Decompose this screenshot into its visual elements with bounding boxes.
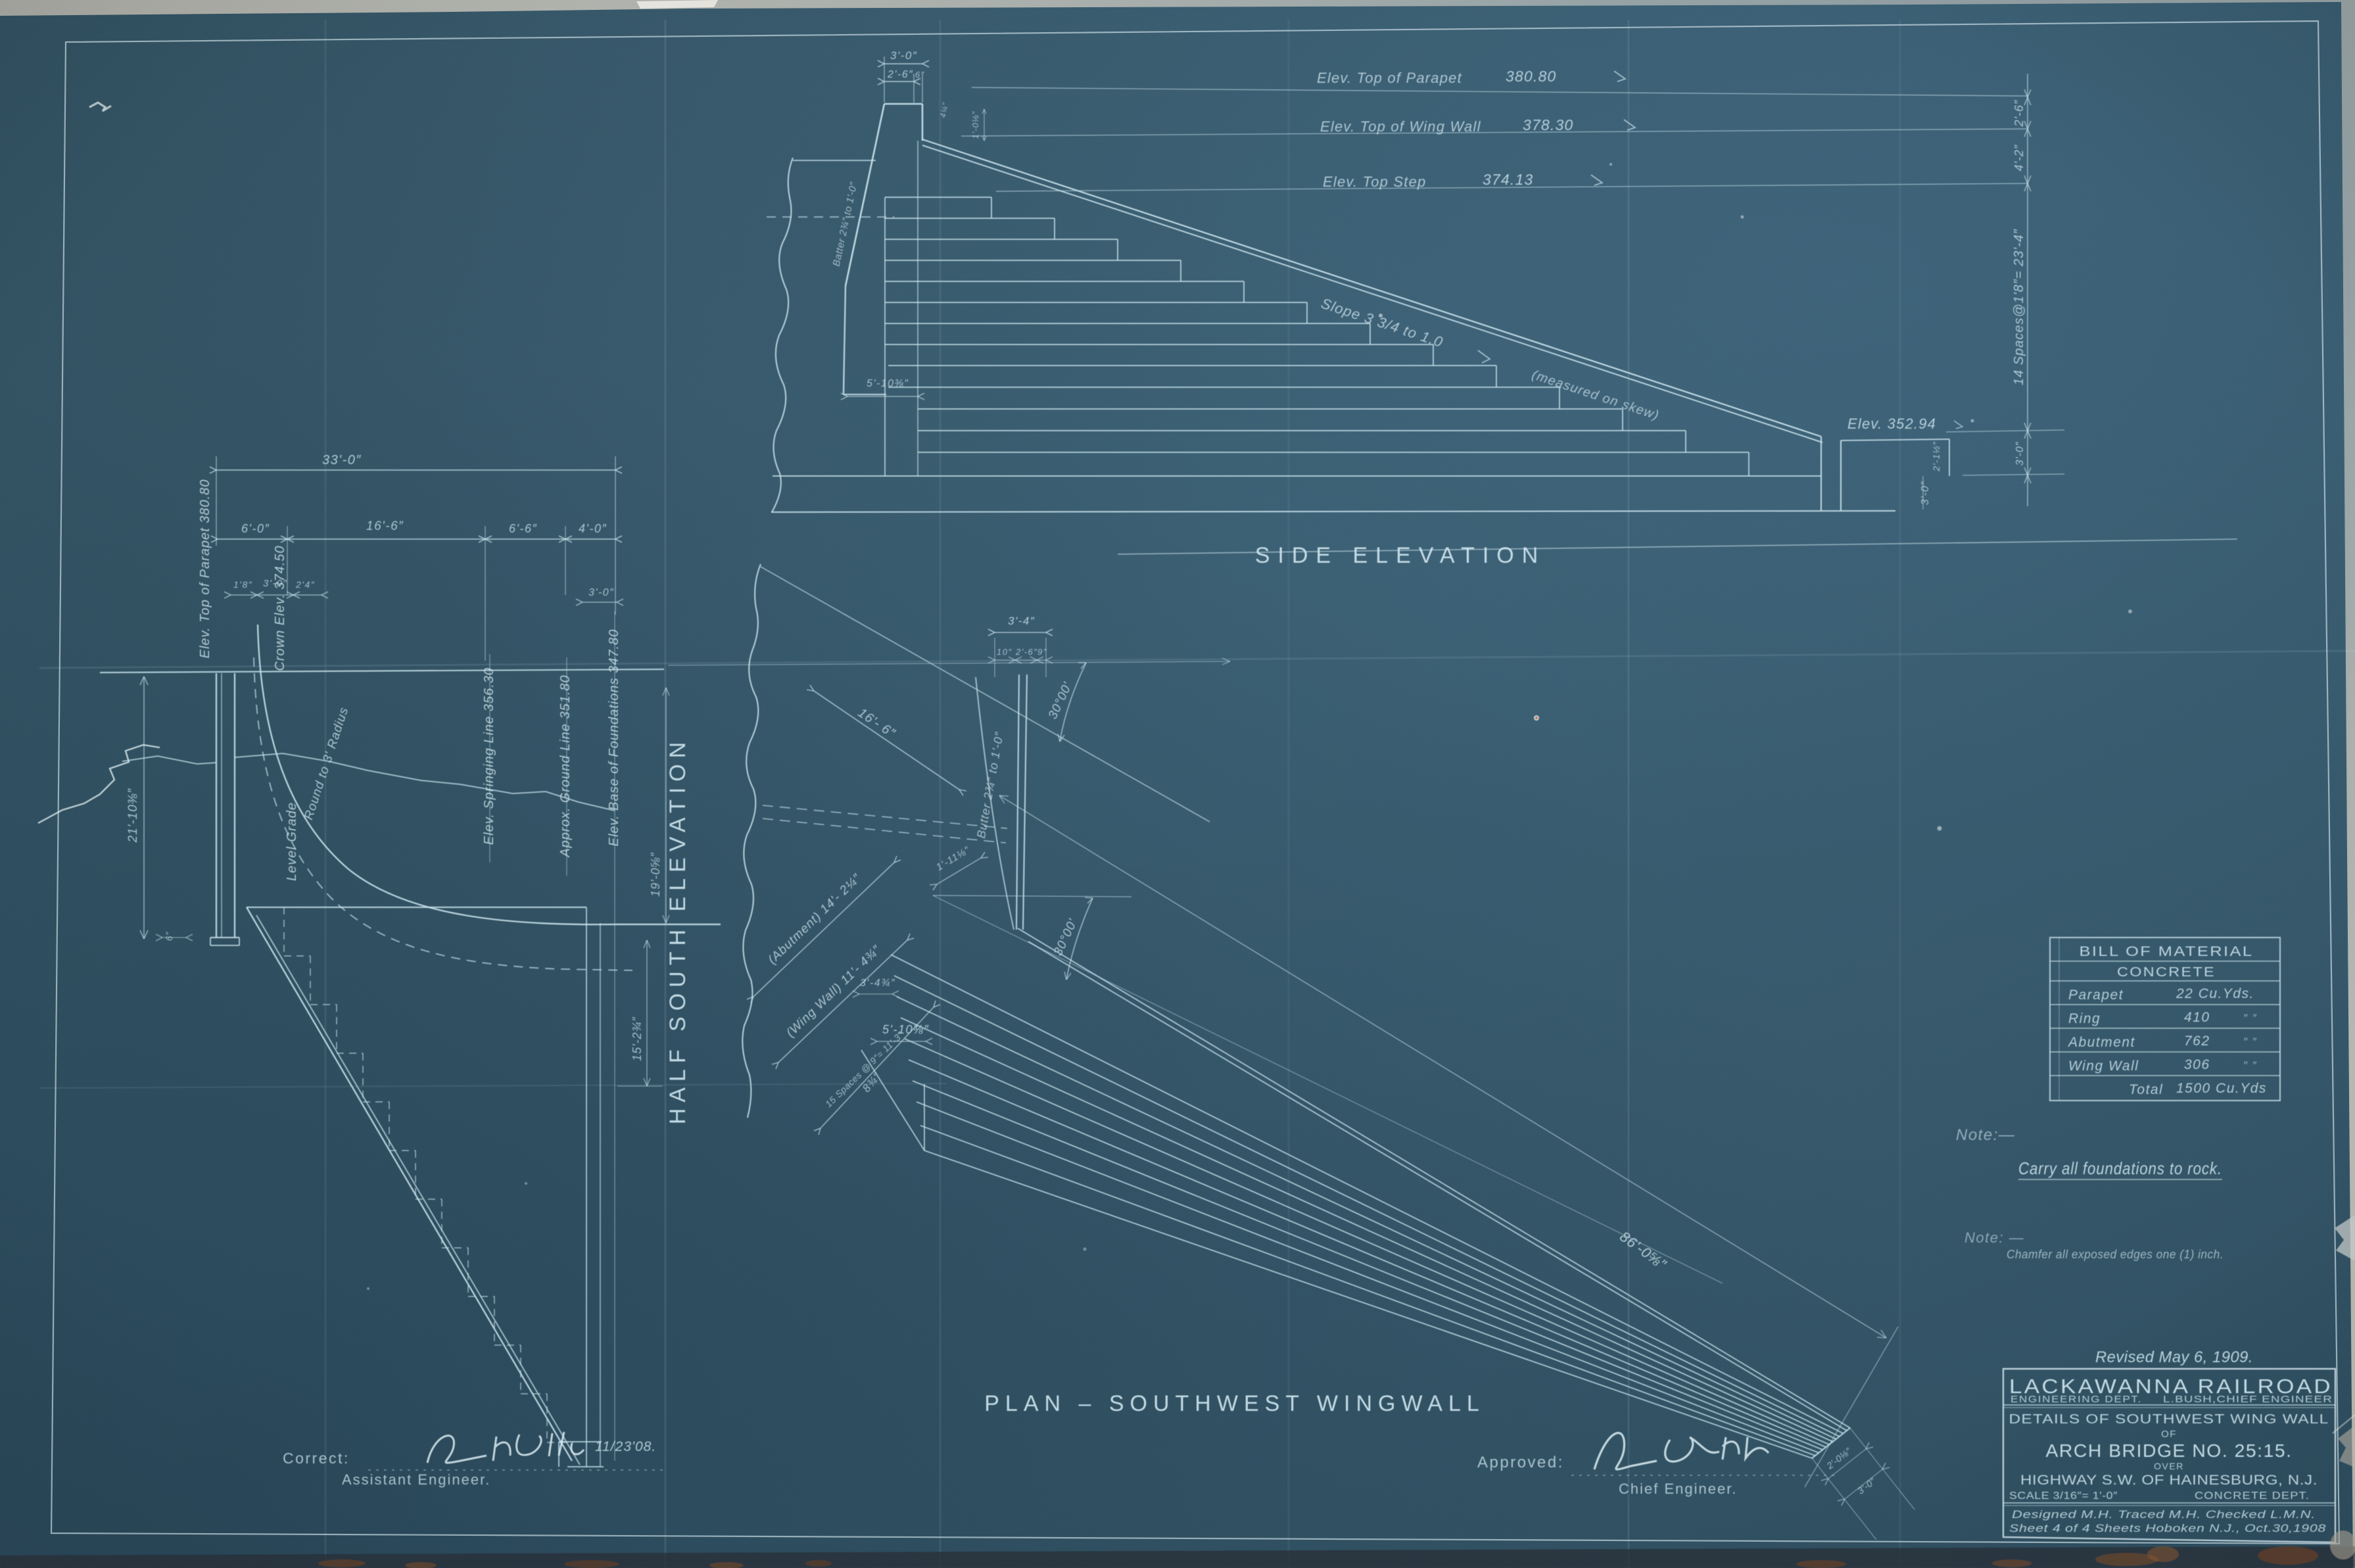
svg-text:Designed M.H. Traced M.H.: Designed M.H. Traced M.H. Checked L.M.N. (2012, 1508, 2316, 1521)
svg-text:L.BUSH,CHIEF ENGINEER: L.BUSH,CHIEF ENGINEER (2163, 1394, 2333, 1405)
svg-text:15'-2¾″: 15'-2¾″ (630, 1016, 644, 1061)
svg-text:Ring: Ring (2068, 1011, 2101, 1026)
svg-text:19'-0⅝″: 19'-0⅝″ (649, 852, 662, 897)
svg-text:″ ″: ″ ″ (2243, 1035, 2257, 1048)
svg-text:SIDE ELEVATION: SIDE ELEVATION (1255, 543, 1546, 568)
svg-text:Wing Wall: Wing Wall (2068, 1058, 2139, 1074)
svg-text:CONCRETE DEPT.: CONCRETE DEPT. (2195, 1490, 2310, 1502)
svg-text:3'-0″: 3'-0″ (1920, 481, 1931, 505)
svg-text:Carry all foundations to rock.: Carry all foundations to rock. (2018, 1158, 2222, 1178)
svg-text:Elev. Top Step: Elev. Top Step (1323, 174, 1426, 190)
svg-text:Parapet: Parapet (2068, 987, 2124, 1003)
svg-text:Revised May 6, 1909.: Revised May 6, 1909. (2095, 1348, 2253, 1366)
svg-text:10″: 10″ (997, 647, 1012, 657)
svg-text:2'-6″: 2'-6″ (1015, 647, 1037, 657)
svg-text:380.80: 380.80 (1506, 68, 1557, 85)
svg-text:Elev. Top of Wing Wall: Elev. Top of Wing Wall (1320, 118, 1481, 135)
svg-text:11/23'08.: 11/23'08. (595, 1439, 656, 1454)
svg-text:″ ″: ″ ″ (2243, 1059, 2257, 1072)
svg-text:CONCRETE: CONCRETE (2117, 965, 2216, 980)
svg-text:Correct:: Correct: (283, 1450, 350, 1467)
svg-text:378.30: 378.30 (1523, 116, 1574, 133)
svg-text:Elev. Springing Line 356.30: Elev. Springing Line 356.30 (482, 667, 496, 845)
svg-text:3'-4¾″: 3'-4¾″ (860, 978, 895, 989)
svg-text:21'-10⅜″: 21'-10⅜″ (126, 788, 140, 843)
svg-text:DETAILS OF SOUTHWEST WING WALL: DETAILS OF SOUTHWEST WING WALL (2009, 1412, 2329, 1427)
svg-text:6'-6″: 6'-6″ (509, 522, 537, 535)
svg-text:33'-0″: 33'-0″ (322, 453, 362, 467)
svg-text:6″: 6″ (164, 932, 174, 941)
svg-text:Chief Engineer.: Chief Engineer. (1619, 1481, 1737, 1497)
svg-text:3'-4″: 3'-4″ (1008, 615, 1035, 627)
svg-text:762: 762 (2184, 1033, 2210, 1049)
svg-text:Note:—: Note:— (1956, 1126, 2015, 1144)
svg-text:Elev. 352.94: Elev. 352.94 (1847, 416, 1936, 432)
svg-text:16'-6″: 16'-6″ (366, 519, 404, 533)
svg-text:3'-0″: 3'-0″ (890, 49, 917, 62)
svg-text:ENGINEERING DEPT.: ENGINEERING DEPT. (2010, 1394, 2142, 1405)
svg-text:22 Cu.Yds.: 22 Cu.Yds. (2176, 986, 2254, 1001)
svg-text:HALF SOUTH ELEVATION: HALF SOUTH ELEVATION (665, 736, 690, 1125)
svg-text:Assistant Engineer.: Assistant Engineer. (342, 1471, 490, 1488)
svg-text:4'-2″: 4'-2″ (2012, 145, 2026, 172)
svg-text:Elev. Top of Parapet 380.80: Elev. Top of Parapet 380.80 (198, 479, 212, 659)
svg-text:BILL OF MATERIAL: BILL OF MATERIAL (2080, 944, 2254, 959)
svg-text:6'-0″: 6'-0″ (241, 522, 270, 535)
svg-text:5'-10⅜″: 5'-10⅜″ (882, 1023, 929, 1036)
svg-text:1500 Cu.Yds: 1500 Cu.Yds (2176, 1081, 2267, 1096)
svg-text:ARCH BRIDGE NO. 25:15.: ARCH BRIDGE NO. 25:15. (2046, 1440, 2293, 1461)
svg-text:Sheet 4 of 4 Sheets Hobok: Sheet 4 of 4 Sheets Hoboken N.J., Oct.30… (2009, 1522, 2326, 1534)
svg-text:″ ″: ″ ″ (2243, 1012, 2257, 1024)
svg-text:9″: 9″ (1037, 647, 1047, 657)
svg-text:3'-0″: 3'-0″ (2014, 441, 2026, 465)
svg-text:Chamfer all exposed edges one: Chamfer all exposed edges one (1) inch. (2007, 1248, 2224, 1261)
svg-text:306: 306 (2184, 1057, 2210, 1072)
svg-text:OF: OF (2161, 1429, 2177, 1440)
svg-text:374.13: 374.13 (1483, 171, 1534, 188)
svg-text:14 Spaces@1'8″= 23'-4″: 14 Spaces@1'8″= 23'-4″ (2012, 229, 2026, 385)
svg-text:SCALE 3/16″= 1'-0″: SCALE 3/16″= 1'-0″ (2009, 1490, 2118, 1502)
svg-text:Approved:: Approved: (1477, 1454, 1564, 1471)
svg-text:PLAN – SOUTHWEST WINGWALL: PLAN – SOUTHWEST WINGWALL (984, 1391, 1485, 1416)
svg-text:Elev. Top of Parapet: Elev. Top of Parapet (1317, 70, 1462, 86)
svg-text:2'-6″: 2'-6″ (887, 69, 913, 80)
svg-text:HIGHWAY S.W. OF HAINESBURG, N.: HIGHWAY S.W. OF HAINESBURG, N.J. (2020, 1473, 2318, 1488)
svg-text:Total: Total (2129, 1082, 2163, 1097)
svg-text:OVER: OVER (2154, 1461, 2184, 1471)
svg-text:Abutment: Abutment (2067, 1035, 2135, 1050)
svg-text:4'-0″: 4'-0″ (579, 522, 607, 535)
svg-text:Note: —: Note: — (1964, 1229, 2024, 1246)
svg-text:2'4″: 2'4″ (295, 579, 315, 590)
svg-text:Crown Elev. 374.50: Crown Elev. 374.50 (273, 545, 287, 671)
svg-text:3'-0″: 3'-0″ (588, 587, 614, 598)
svg-text:2'-6″: 2'-6″ (2012, 100, 2026, 128)
svg-text:Elev. Base of Foundations 34: Elev. Base of Foundations 347.80 (607, 629, 621, 847)
svg-text:Approx. Ground Line 351.80: Approx. Ground Line 351.80 (558, 675, 573, 857)
svg-text:1'-0⅛″: 1'-0⅛″ (970, 111, 980, 139)
svg-text:2'-1½″: 2'-1½″ (1931, 441, 1941, 472)
svg-text:1'8″: 1'8″ (233, 579, 252, 590)
svg-text:6″: 6″ (915, 70, 925, 80)
svg-text:410: 410 (2184, 1010, 2210, 1025)
